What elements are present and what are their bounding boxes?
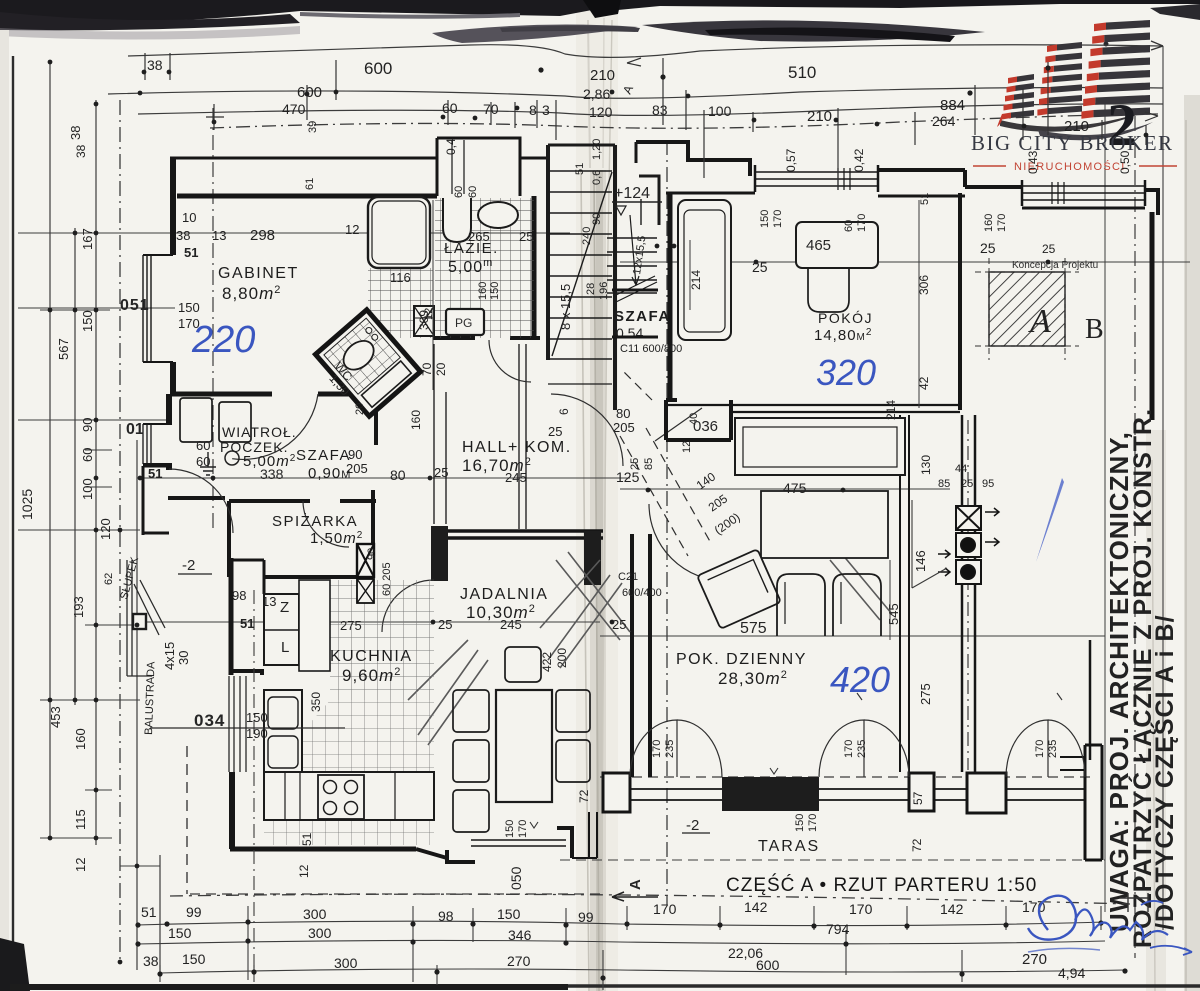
svg-text:25: 25: [519, 229, 533, 244]
svg-text:60: 60: [453, 186, 465, 198]
svg-text:95: 95: [982, 478, 994, 490]
svg-text:60: 60: [467, 186, 479, 198]
svg-text:160: 160: [409, 410, 423, 430]
svg-text:0,42: 0,42: [852, 148, 866, 172]
svg-text:120: 120: [98, 518, 113, 540]
svg-text:338: 338: [260, 466, 284, 482]
svg-text:116: 116: [390, 270, 411, 285]
svg-text:235: 235: [1047, 740, 1059, 758]
svg-text:100: 100: [708, 103, 732, 119]
svg-text:25: 25: [438, 617, 452, 632]
svg-text:205: 205: [613, 420, 635, 435]
svg-text:90: 90: [348, 447, 362, 462]
svg-text:600: 600: [756, 957, 780, 973]
svg-text:115: 115: [73, 809, 88, 830]
svg-text:25: 25: [961, 478, 973, 490]
svg-text:A: A: [1028, 303, 1051, 340]
svg-text:C11 600/800: C11 600/800: [620, 343, 682, 355]
svg-text:90: 90: [591, 213, 603, 225]
svg-text:142: 142: [940, 901, 964, 917]
svg-text:8 x 15,5: 8 x 15,5: [558, 284, 573, 330]
svg-text:510: 510: [788, 63, 816, 82]
svg-text:SZAFA: SZAFA: [614, 308, 671, 325]
svg-text:196: 196: [598, 282, 610, 300]
svg-text:20: 20: [354, 403, 366, 415]
svg-text:309: 309: [417, 310, 431, 330]
svg-text:30: 30: [176, 651, 191, 665]
svg-text:-2: -2: [686, 817, 699, 834]
svg-text:10: 10: [182, 210, 196, 225]
svg-text:214: 214: [689, 270, 703, 290]
svg-text:275: 275: [918, 683, 933, 705]
svg-text:A: A: [627, 879, 644, 890]
svg-text:034: 034: [194, 711, 225, 730]
svg-text:85: 85: [643, 458, 655, 470]
svg-text:150: 150: [246, 710, 268, 725]
svg-text:150: 150: [497, 906, 521, 922]
svg-text:/DOTYCZY CZĘŚCI A i B/: /DOTYCZY CZĘŚCI A i B/: [1149, 614, 1179, 930]
svg-text:83: 83: [652, 102, 668, 118]
svg-text:275: 275: [340, 618, 362, 633]
svg-text:80: 80: [390, 467, 406, 483]
svg-text:245: 245: [505, 470, 527, 485]
svg-text:JADALNIA: JADALNIA: [460, 586, 548, 603]
svg-text:SPIŻARKA: SPIŻARKA: [272, 512, 358, 530]
svg-text:1025: 1025: [19, 489, 35, 520]
svg-text:350: 350: [309, 692, 323, 712]
svg-text:545: 545: [886, 603, 901, 625]
svg-text:01: 01: [126, 421, 144, 438]
svg-text:SZAFA: SZAFA: [296, 447, 351, 464]
svg-text:GABINET: GABINET: [218, 265, 299, 282]
svg-text:235: 235: [856, 740, 868, 758]
svg-text:270: 270: [1022, 951, 1047, 968]
svg-text:120: 120: [589, 104, 613, 120]
svg-text:205: 205: [346, 461, 368, 476]
svg-text:150: 150: [489, 282, 501, 300]
svg-text:51: 51: [240, 616, 254, 631]
svg-text:40: 40: [688, 413, 700, 425]
svg-text:25: 25: [1042, 242, 1056, 256]
svg-text:90: 90: [80, 418, 95, 432]
svg-text:98: 98: [232, 588, 246, 603]
svg-text:475: 475: [783, 480, 807, 496]
svg-text:72: 72: [910, 838, 924, 852]
svg-text:60: 60: [843, 220, 855, 232]
svg-text:25: 25: [612, 617, 626, 632]
svg-text:6: 6: [557, 408, 571, 415]
svg-text:146: 146: [913, 550, 928, 572]
svg-text:051: 051: [120, 297, 150, 314]
svg-text:60: 60: [196, 438, 210, 453]
svg-text:100: 100: [80, 478, 95, 500]
svg-text:170: 170: [772, 210, 784, 228]
svg-text:300: 300: [334, 955, 358, 971]
svg-text:13: 13: [262, 594, 276, 609]
svg-text:470: 470: [282, 101, 306, 117]
svg-text:38: 38: [147, 57, 163, 73]
svg-text:346: 346: [508, 927, 532, 943]
svg-text:8,80m2: 8,80m2: [222, 284, 281, 303]
svg-text:25: 25: [434, 465, 448, 480]
svg-text:170: 170: [653, 901, 677, 917]
svg-text:794: 794: [826, 921, 850, 937]
svg-text:245: 245: [500, 617, 522, 632]
svg-text:25: 25: [548, 424, 562, 439]
svg-text:150: 150: [504, 820, 516, 838]
svg-text:60 205: 60 205: [381, 562, 393, 596]
svg-text:60: 60: [196, 454, 210, 469]
svg-text:575: 575: [740, 620, 767, 637]
svg-text:28,30m2: 28,30m2: [718, 669, 788, 688]
svg-text:320: 320: [816, 352, 876, 393]
svg-text:98: 98: [438, 908, 454, 924]
svg-text:12: 12: [345, 222, 359, 237]
svg-text:-2: -2: [182, 557, 195, 574]
svg-text:465: 465: [806, 237, 831, 254]
svg-text:0,50: 0,50: [1118, 150, 1132, 174]
svg-text:0.54: 0.54: [616, 325, 643, 341]
svg-text:38: 38: [68, 126, 83, 140]
svg-text:210: 210: [807, 108, 832, 125]
svg-text:150: 150: [178, 300, 200, 315]
svg-text:25: 25: [980, 240, 996, 256]
svg-text:422: 422: [540, 652, 554, 672]
svg-text:38: 38: [143, 953, 159, 969]
svg-text:4x15: 4x15: [162, 642, 177, 670]
svg-text:WIATROŁ.: WIATROŁ.: [222, 424, 297, 440]
svg-text:600: 600: [297, 84, 322, 101]
svg-text:99: 99: [578, 909, 594, 925]
svg-text:25: 25: [752, 259, 768, 275]
svg-text:51: 51: [141, 904, 157, 920]
svg-text:9,60m2: 9,60m2: [342, 666, 401, 685]
svg-text:150: 150: [182, 951, 206, 967]
svg-text:51: 51: [184, 245, 198, 260]
svg-text:POK. DZIENNY: POK. DZIENNY: [676, 651, 807, 668]
svg-text:1,50m2: 1,50m2: [310, 530, 363, 547]
svg-text:0,4: 0,4: [444, 138, 458, 155]
svg-text:39: 39: [307, 121, 319, 133]
svg-text:38: 38: [74, 144, 88, 158]
svg-text:51: 51: [148, 466, 162, 481]
svg-text:57: 57: [911, 791, 925, 805]
svg-text:28: 28: [585, 283, 597, 295]
svg-text:300: 300: [308, 925, 332, 941]
svg-text:4,94: 4,94: [1058, 965, 1085, 981]
svg-text:214: 214: [884, 400, 898, 420]
svg-text:170: 170: [807, 814, 819, 832]
svg-text:600/400: 600/400: [622, 587, 662, 599]
svg-text:190: 190: [246, 726, 268, 741]
svg-text:160: 160: [477, 282, 489, 300]
svg-text:170: 170: [1034, 740, 1046, 758]
svg-text:264: 264: [932, 113, 956, 129]
svg-text:150: 150: [794, 814, 806, 832]
svg-text:85: 85: [938, 478, 950, 490]
svg-text:170: 170: [843, 740, 855, 758]
svg-text:150: 150: [80, 310, 95, 332]
svg-text:20: 20: [434, 362, 448, 376]
svg-text:240: 240: [581, 227, 593, 245]
svg-text:170: 170: [849, 901, 873, 917]
svg-text:220: 220: [191, 319, 255, 361]
svg-text:193: 193: [71, 596, 86, 618]
svg-text:12: 12: [297, 864, 311, 878]
svg-text:Z: Z: [280, 599, 289, 616]
svg-text:170: 170: [856, 214, 868, 232]
svg-text:8: 8: [529, 102, 537, 118]
svg-text:TARAS: TARAS: [758, 838, 820, 855]
svg-text:C21: C21: [618, 571, 638, 583]
svg-text:60: 60: [80, 448, 95, 462]
svg-text:70: 70: [420, 362, 434, 376]
svg-text:51: 51: [919, 193, 931, 205]
svg-text:0,6: 0,6: [591, 170, 603, 185]
svg-text:44: 44: [955, 463, 967, 475]
svg-text:125: 125: [616, 469, 640, 485]
svg-text:KUCHNIA: KUCHNIA: [330, 648, 413, 665]
svg-text:38: 38: [176, 228, 190, 243]
svg-text:270: 270: [507, 953, 531, 969]
svg-text:62: 62: [103, 573, 115, 585]
svg-text:B: B: [1085, 314, 1104, 345]
svg-text:265: 265: [468, 229, 490, 244]
svg-text:HALL+ KOM.: HALL+ KOM.: [462, 439, 572, 456]
svg-text:567: 567: [56, 338, 71, 360]
svg-text:600: 600: [364, 59, 392, 78]
svg-text:90: 90: [366, 548, 378, 560]
svg-text:3: 3: [542, 102, 550, 118]
svg-text:L: L: [281, 639, 289, 656]
svg-text:050: 050: [508, 866, 524, 890]
svg-text:300: 300: [303, 906, 327, 922]
svg-text:167: 167: [80, 228, 95, 250]
svg-text:12: 12: [681, 441, 693, 453]
svg-text:160: 160: [983, 214, 995, 232]
svg-text:CZĘŚĆ A • RZUT PARTERU 1:50: CZĘŚĆ A • RZUT PARTERU 1:50: [726, 874, 1037, 896]
svg-text:POKÓJ: POKÓJ: [818, 310, 873, 326]
svg-text:298: 298: [250, 227, 275, 244]
svg-text:61: 61: [304, 178, 316, 190]
svg-text:13: 13: [212, 228, 226, 243]
svg-text:PG: PG: [455, 316, 472, 330]
svg-text:80: 80: [616, 406, 630, 421]
svg-text:130: 130: [919, 455, 933, 475]
svg-text:1,20: 1,20: [591, 139, 603, 160]
svg-text:72: 72: [577, 789, 591, 803]
svg-text:210: 210: [1064, 118, 1089, 135]
svg-text:0,57: 0,57: [784, 148, 798, 172]
svg-text:150: 150: [168, 925, 192, 941]
svg-text:420: 420: [830, 659, 890, 700]
svg-text:210: 210: [590, 67, 615, 84]
svg-text:150: 150: [759, 210, 771, 228]
svg-text:142: 142: [744, 899, 768, 915]
svg-text:160: 160: [73, 728, 88, 750]
svg-text:170: 170: [517, 820, 529, 838]
svg-text:Koncepcja Projektu: Koncepcja Projektu: [1012, 260, 1098, 271]
svg-text:25: 25: [629, 458, 641, 470]
svg-text:99: 99: [186, 904, 202, 920]
svg-text:60: 60: [442, 100, 458, 116]
svg-text:884: 884: [940, 97, 965, 114]
svg-text:51: 51: [574, 163, 586, 175]
svg-text:453: 453: [48, 706, 63, 728]
svg-text:170: 170: [651, 740, 663, 758]
svg-text:235: 235: [664, 740, 676, 758]
svg-text:200: 200: [555, 648, 569, 668]
svg-text:12: 12: [73, 858, 88, 872]
svg-text:2,86: 2,86: [583, 86, 610, 102]
svg-text:51: 51: [300, 832, 314, 846]
svg-text:170: 170: [996, 214, 1008, 232]
svg-text:+124: +124: [614, 185, 650, 202]
svg-text:0,43: 0,43: [1026, 150, 1040, 174]
